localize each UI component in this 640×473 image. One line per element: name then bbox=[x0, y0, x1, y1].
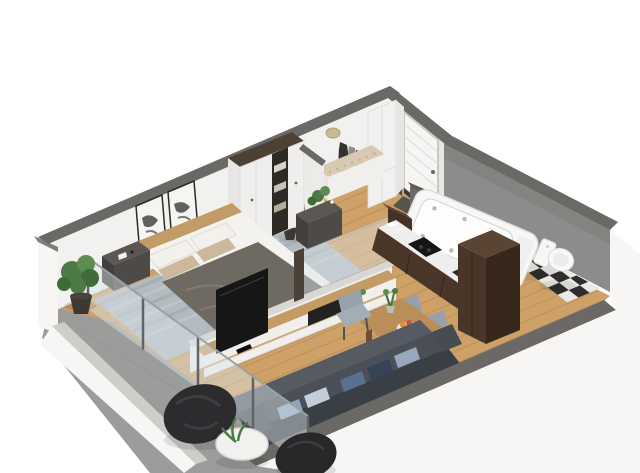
hat bbox=[326, 128, 340, 138]
kitchen-tall-cabinet bbox=[458, 230, 520, 344]
toilet-shadow bbox=[540, 280, 576, 292]
apartment-3d-floorplan bbox=[0, 0, 640, 473]
half-wall-post bbox=[294, 248, 304, 302]
door-handle bbox=[431, 170, 435, 174]
floorplan-canvas bbox=[0, 0, 640, 473]
left-exterior-wall bbox=[34, 236, 58, 334]
